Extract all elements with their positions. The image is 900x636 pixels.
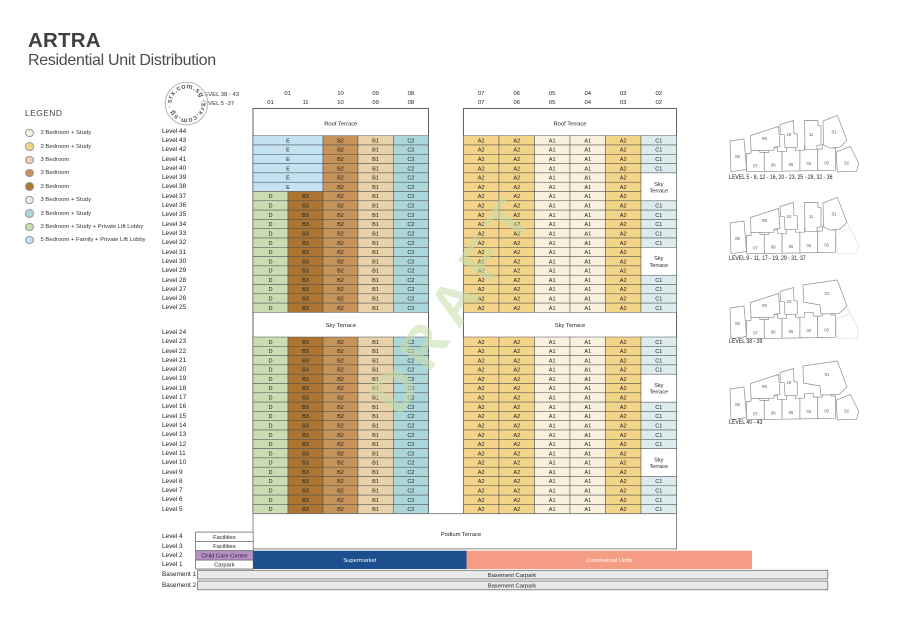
- svg-text:05: 05: [789, 244, 794, 249]
- svg-text:C2: C2: [407, 185, 414, 191]
- svg-text:A2: A2: [620, 433, 627, 439]
- svg-text:B3: B3: [302, 414, 309, 420]
- svg-text:B2: B2: [337, 250, 344, 256]
- svg-text:04: 04: [806, 243, 811, 248]
- svg-text:B2: B2: [337, 241, 344, 247]
- svg-text:A2: A2: [513, 470, 520, 476]
- svg-text:A2: A2: [620, 451, 627, 457]
- svg-text:Terrace: Terrace: [649, 263, 668, 269]
- svg-text:B2: B2: [337, 269, 344, 275]
- svg-text:Terrace: Terrace: [649, 464, 668, 470]
- svg-text:B3: B3: [302, 269, 309, 275]
- svg-text:A1: A1: [549, 278, 556, 284]
- svg-text:A1: A1: [549, 424, 556, 430]
- svg-text:A2: A2: [513, 414, 520, 420]
- svg-text:02: 02: [844, 409, 849, 414]
- svg-text:B2: B2: [337, 148, 344, 154]
- svg-text:A2: A2: [478, 222, 485, 228]
- svg-text:C1: C1: [655, 507, 662, 513]
- svg-text:C2: C2: [407, 442, 414, 448]
- svg-text:Terrace: Terrace: [649, 390, 668, 396]
- svg-text:A2: A2: [620, 269, 627, 275]
- svg-text:C2: C2: [407, 424, 414, 430]
- svg-text:A2: A2: [620, 461, 627, 467]
- svg-text:A2: A2: [620, 250, 627, 256]
- svg-text:10: 10: [787, 299, 792, 304]
- svg-text:A1: A1: [549, 241, 556, 247]
- svg-text:A2: A2: [620, 414, 627, 420]
- svg-text:D: D: [268, 368, 272, 374]
- svg-text:C2: C2: [407, 396, 414, 402]
- svg-text:A1: A1: [584, 204, 591, 210]
- svg-text:A2: A2: [620, 204, 627, 210]
- svg-text:C2: C2: [407, 461, 414, 467]
- svg-text:A2: A2: [620, 148, 627, 154]
- svg-text:A2: A2: [478, 349, 485, 355]
- svg-text:06: 06: [771, 245, 776, 250]
- svg-text:B3: B3: [302, 204, 309, 210]
- svg-text:03: 03: [824, 242, 829, 247]
- svg-text:A2: A2: [620, 358, 627, 364]
- svg-text:A2: A2: [620, 138, 627, 144]
- svg-text:05: 05: [789, 329, 794, 334]
- svg-text:B1: B1: [372, 386, 379, 392]
- svg-text:A1: A1: [584, 194, 591, 200]
- svg-text:C2: C2: [407, 157, 414, 163]
- svg-text:06: 06: [771, 330, 776, 335]
- svg-text:C2: C2: [407, 231, 414, 237]
- svg-text:B1: B1: [372, 358, 379, 364]
- svg-text:B1: B1: [372, 269, 379, 275]
- svg-text:A2: A2: [513, 489, 520, 495]
- svg-text:C1: C1: [655, 340, 662, 346]
- svg-text:A2: A2: [478, 377, 485, 383]
- svg-text:B3: B3: [302, 386, 309, 392]
- svg-text:B1: B1: [372, 241, 379, 247]
- svg-text:B2: B2: [337, 204, 344, 210]
- svg-text:B2: B2: [337, 340, 344, 346]
- svg-text:A2: A2: [513, 498, 520, 504]
- svg-text:Sky Terrace: Sky Terrace: [326, 323, 357, 329]
- svg-text:08: 08: [735, 402, 740, 407]
- svg-text:C1: C1: [655, 358, 662, 364]
- svg-text:B3: B3: [302, 287, 309, 293]
- svg-text:C2: C2: [407, 498, 414, 504]
- svg-text:A1: A1: [549, 461, 556, 467]
- svg-text:C2: C2: [407, 213, 414, 219]
- svg-text:A1: A1: [584, 250, 591, 256]
- svg-text:C2: C2: [407, 358, 414, 364]
- svg-text:Basement Carpark: Basement Carpark: [488, 584, 536, 590]
- svg-text:A2: A2: [620, 241, 627, 247]
- svg-text:A2: A2: [620, 213, 627, 219]
- svg-text:A1: A1: [584, 157, 591, 163]
- svg-text:A2: A2: [478, 405, 485, 411]
- svg-text:A1: A1: [549, 138, 556, 144]
- svg-text:B3: B3: [302, 358, 309, 364]
- svg-text:Podium Terrace: Podium Terrace: [441, 532, 482, 538]
- svg-text:C2: C2: [407, 306, 414, 312]
- svg-text:C2: C2: [407, 287, 414, 293]
- svg-text:A1: A1: [549, 269, 556, 275]
- svg-text:D: D: [268, 507, 272, 513]
- svg-text:C2: C2: [407, 349, 414, 355]
- svg-text:B3: B3: [302, 241, 309, 247]
- svg-text:B2: B2: [337, 368, 344, 374]
- svg-text:C2: C2: [407, 433, 414, 439]
- svg-text:A1: A1: [584, 241, 591, 247]
- svg-text:B1: B1: [372, 231, 379, 237]
- svg-text:C2: C2: [407, 194, 414, 200]
- svg-text:A1: A1: [549, 250, 556, 256]
- svg-text:B1: B1: [372, 222, 379, 228]
- svg-text:04: 04: [806, 409, 811, 414]
- svg-text:D: D: [268, 259, 272, 265]
- svg-text:A1: A1: [549, 176, 556, 182]
- svg-text:A1: A1: [584, 489, 591, 495]
- svg-text:A2: A2: [620, 470, 627, 476]
- svg-text:D: D: [268, 287, 272, 293]
- svg-text:B1: B1: [372, 424, 379, 430]
- svg-text:A2: A2: [620, 297, 627, 303]
- svg-text:A1: A1: [549, 166, 556, 172]
- svg-text:A2: A2: [620, 176, 627, 182]
- svg-text:B1: B1: [372, 250, 379, 256]
- svg-text:B2: B2: [337, 185, 344, 191]
- svg-text:B1: B1: [372, 396, 379, 402]
- svg-text:A2: A2: [513, 222, 520, 228]
- svg-text:B3: B3: [302, 489, 309, 495]
- svg-text:A1: A1: [584, 442, 591, 448]
- svg-text:B2: B2: [337, 405, 344, 411]
- svg-text:A2: A2: [513, 386, 520, 392]
- svg-text:Carpark: Carpark: [214, 563, 235, 569]
- svg-text:A1: A1: [549, 507, 556, 513]
- svg-text:A2: A2: [513, 396, 520, 402]
- svg-text:Facilities: Facilities: [213, 544, 236, 550]
- svg-text:C2: C2: [407, 176, 414, 182]
- svg-text:A2: A2: [620, 349, 627, 355]
- svg-text:A2: A2: [620, 396, 627, 402]
- svg-text:A1: A1: [584, 166, 591, 172]
- svg-text:C2: C2: [407, 377, 414, 383]
- svg-text:A2: A2: [478, 278, 485, 284]
- svg-text:C1: C1: [655, 489, 662, 495]
- svg-text:C1: C1: [655, 204, 662, 210]
- svg-text:B3: B3: [302, 340, 309, 346]
- svg-text:A2: A2: [513, 368, 520, 374]
- svg-text:D: D: [268, 306, 272, 312]
- svg-text:A2: A2: [513, 442, 520, 448]
- svg-text:A1: A1: [584, 424, 591, 430]
- svg-text:C2: C2: [407, 148, 414, 154]
- svg-text:A2: A2: [513, 433, 520, 439]
- svg-text:01: 01: [825, 291, 830, 296]
- svg-text:C2: C2: [407, 470, 414, 476]
- svg-text:A1: A1: [584, 222, 591, 228]
- svg-text:A1: A1: [584, 414, 591, 420]
- svg-text:A1: A1: [584, 138, 591, 144]
- svg-text:B1: B1: [372, 498, 379, 504]
- svg-text:A2: A2: [513, 148, 520, 154]
- svg-text:05: 05: [789, 162, 794, 167]
- svg-text:B2: B2: [337, 451, 344, 457]
- svg-text:B2: B2: [337, 259, 344, 265]
- svg-text:A1: A1: [549, 259, 556, 265]
- svg-text:B3: B3: [302, 368, 309, 374]
- svg-text:E: E: [286, 185, 290, 191]
- svg-text:B2: B2: [337, 231, 344, 237]
- svg-text:B1: B1: [372, 470, 379, 476]
- svg-text:C2: C2: [407, 479, 414, 485]
- svg-text:B3: B3: [302, 405, 309, 411]
- svg-text:07: 07: [753, 163, 758, 168]
- svg-text:B2: B2: [337, 176, 344, 182]
- svg-text:A2: A2: [478, 287, 485, 293]
- svg-text:A1: A1: [584, 306, 591, 312]
- svg-text:A1: A1: [549, 451, 556, 457]
- svg-text:Sky: Sky: [654, 383, 664, 389]
- svg-text:B3: B3: [302, 349, 309, 355]
- svg-text:01: 01: [832, 130, 837, 135]
- svg-text:A2: A2: [620, 287, 627, 293]
- svg-text:C2: C2: [407, 250, 414, 256]
- svg-text:A1: A1: [584, 368, 591, 374]
- svg-text:04: 04: [806, 161, 811, 166]
- svg-text:A1: A1: [584, 176, 591, 182]
- svg-text:B2: B2: [337, 222, 344, 228]
- svg-text:E: E: [286, 138, 290, 144]
- svg-text:C2: C2: [407, 340, 414, 346]
- svg-text:A1: A1: [549, 433, 556, 439]
- svg-text:A1: A1: [549, 204, 556, 210]
- svg-text:A1: A1: [549, 405, 556, 411]
- svg-text:B1: B1: [372, 213, 379, 219]
- svg-text:A2: A2: [513, 377, 520, 383]
- svg-text:B2: B2: [337, 349, 344, 355]
- svg-text:D: D: [268, 433, 272, 439]
- svg-text:D: D: [268, 358, 272, 364]
- svg-text:D: D: [268, 349, 272, 355]
- svg-text:D: D: [268, 204, 272, 210]
- svg-text:B1: B1: [372, 405, 379, 411]
- svg-text:A2: A2: [513, 306, 520, 312]
- svg-text:07: 07: [753, 245, 758, 250]
- svg-text:A2: A2: [478, 185, 485, 191]
- svg-text:A1: A1: [584, 269, 591, 275]
- svg-text:D: D: [268, 241, 272, 247]
- svg-text:A2: A2: [620, 166, 627, 172]
- svg-text:A2: A2: [478, 489, 485, 495]
- svg-text:A1: A1: [549, 479, 556, 485]
- svg-text:B1: B1: [372, 489, 379, 495]
- svg-text:A2: A2: [478, 138, 485, 144]
- svg-text:C2: C2: [407, 278, 414, 284]
- svg-text:A1: A1: [549, 498, 556, 504]
- svg-text:A2: A2: [513, 405, 520, 411]
- svg-text:A2: A2: [620, 340, 627, 346]
- svg-text:D: D: [268, 297, 272, 303]
- svg-text:C2: C2: [407, 451, 414, 457]
- svg-text:A2: A2: [478, 507, 485, 513]
- svg-text:B2: B2: [337, 138, 344, 144]
- svg-text:A2: A2: [478, 340, 485, 346]
- svg-text:B2: B2: [337, 507, 344, 513]
- svg-text:A1: A1: [549, 358, 556, 364]
- svg-text:09: 09: [762, 303, 767, 308]
- svg-text:D: D: [268, 424, 272, 430]
- svg-text:B3: B3: [302, 306, 309, 312]
- svg-text:04: 04: [806, 328, 811, 333]
- svg-text:C2: C2: [407, 507, 414, 513]
- svg-text:A1: A1: [549, 368, 556, 374]
- svg-text:A1: A1: [584, 479, 591, 485]
- svg-text:A2: A2: [620, 368, 627, 374]
- svg-text:Sky Terrace: Sky Terrace: [555, 323, 586, 329]
- svg-text:B3: B3: [302, 213, 309, 219]
- svg-text:06: 06: [771, 411, 776, 416]
- svg-text:C1: C1: [655, 278, 662, 284]
- svg-text:A2: A2: [513, 250, 520, 256]
- svg-text:A2: A2: [620, 424, 627, 430]
- svg-text:Supermarket: Supermarket: [343, 558, 377, 564]
- svg-text:A2: A2: [513, 358, 520, 364]
- svg-text:A1: A1: [549, 297, 556, 303]
- svg-text:A2: A2: [620, 157, 627, 163]
- svg-text:A1: A1: [584, 405, 591, 411]
- svg-text:B1: B1: [372, 433, 379, 439]
- svg-text:B3: B3: [302, 498, 309, 504]
- svg-text:B2: B2: [337, 194, 344, 200]
- svg-text:C1: C1: [655, 424, 662, 430]
- svg-text:B3: B3: [302, 461, 309, 467]
- svg-text:01: 01: [825, 372, 830, 377]
- svg-text:A2: A2: [620, 259, 627, 265]
- svg-text:A2: A2: [513, 138, 520, 144]
- svg-text:A1: A1: [584, 470, 591, 476]
- svg-text:E: E: [286, 157, 290, 163]
- svg-text:C2: C2: [407, 368, 414, 374]
- svg-text:Terrace: Terrace: [649, 188, 668, 194]
- svg-text:D: D: [268, 479, 272, 485]
- svg-text:A2: A2: [620, 377, 627, 383]
- svg-text:10: 10: [787, 380, 792, 385]
- svg-text:B3: B3: [302, 470, 309, 476]
- svg-text:B3: B3: [302, 433, 309, 439]
- svg-text:B1: B1: [372, 259, 379, 265]
- svg-text:B1: B1: [372, 451, 379, 457]
- svg-text:A2: A2: [513, 259, 520, 265]
- svg-text:B1: B1: [372, 461, 379, 467]
- svg-text:B1: B1: [372, 157, 379, 163]
- svg-text:B1: B1: [372, 340, 379, 346]
- svg-text:Sky: Sky: [654, 182, 664, 188]
- svg-text:A2: A2: [478, 470, 485, 476]
- svg-text:Sky: Sky: [654, 458, 664, 464]
- svg-text:C1: C1: [655, 241, 662, 247]
- svg-text:D: D: [268, 498, 272, 504]
- svg-text:A1: A1: [549, 194, 556, 200]
- svg-text:05: 05: [789, 410, 794, 415]
- svg-text:A2: A2: [513, 479, 520, 485]
- svg-text:B1: B1: [372, 414, 379, 420]
- svg-text:07: 07: [753, 330, 758, 335]
- svg-text:C1: C1: [655, 148, 662, 154]
- svg-text:A2: A2: [478, 386, 485, 392]
- svg-text:Sky: Sky: [654, 256, 664, 262]
- svg-text:A2: A2: [478, 176, 485, 182]
- svg-text:B1: B1: [372, 507, 379, 513]
- svg-text:B1: B1: [372, 185, 379, 191]
- svg-text:A1: A1: [584, 278, 591, 284]
- svg-text:A1: A1: [584, 451, 591, 457]
- svg-text:A2: A2: [513, 349, 520, 355]
- svg-text:C2: C2: [407, 405, 414, 411]
- svg-text:A2: A2: [478, 241, 485, 247]
- svg-text:08: 08: [735, 236, 740, 241]
- svg-text:B1: B1: [372, 377, 379, 383]
- svg-text:02: 02: [844, 161, 849, 166]
- svg-text:B1: B1: [372, 278, 379, 284]
- svg-text:A1: A1: [584, 507, 591, 513]
- svg-text:D: D: [268, 470, 272, 476]
- svg-text:C1: C1: [655, 287, 662, 293]
- svg-text:B2: B2: [337, 377, 344, 383]
- svg-text:A2: A2: [478, 231, 485, 237]
- svg-text:A1: A1: [549, 349, 556, 355]
- svg-text:A1: A1: [549, 470, 556, 476]
- svg-text:D: D: [268, 278, 272, 284]
- svg-text:A2: A2: [478, 148, 485, 154]
- svg-text:B2: B2: [337, 396, 344, 402]
- svg-text:B2: B2: [337, 386, 344, 392]
- svg-text:B3: B3: [302, 507, 309, 513]
- svg-text:A1: A1: [584, 396, 591, 402]
- svg-text:09: 09: [762, 384, 767, 389]
- svg-text:A2: A2: [478, 204, 485, 210]
- svg-text:01: 01: [832, 212, 837, 217]
- svg-text:Child Care Centre: Child Care Centre: [201, 554, 247, 560]
- svg-text:Roof Terrace: Roof Terrace: [324, 122, 357, 128]
- svg-text:B2: B2: [337, 166, 344, 172]
- svg-text:A2: A2: [620, 498, 627, 504]
- svg-text:D: D: [268, 269, 272, 275]
- svg-text:09: 09: [762, 136, 767, 141]
- svg-text:D: D: [268, 386, 272, 392]
- svg-text:B2: B2: [337, 358, 344, 364]
- svg-text:D: D: [268, 442, 272, 448]
- svg-text:A2: A2: [620, 231, 627, 237]
- svg-text:A2: A2: [620, 386, 627, 392]
- svg-text:A1: A1: [549, 213, 556, 219]
- svg-text:D: D: [268, 489, 272, 495]
- svg-text:B2: B2: [337, 461, 344, 467]
- svg-text:C1: C1: [655, 166, 662, 172]
- svg-text:A2: A2: [478, 498, 485, 504]
- svg-text:B2: B2: [337, 297, 344, 303]
- svg-text:A2: A2: [513, 204, 520, 210]
- svg-text:B1: B1: [372, 204, 379, 210]
- svg-text:A2: A2: [478, 424, 485, 430]
- svg-text:A2: A2: [513, 451, 520, 457]
- svg-text:A2: A2: [478, 433, 485, 439]
- svg-text:C2: C2: [407, 489, 414, 495]
- svg-text:A1: A1: [584, 377, 591, 383]
- svg-text:B1: B1: [372, 368, 379, 374]
- svg-text:D: D: [268, 396, 272, 402]
- svg-text:A1: A1: [584, 148, 591, 154]
- svg-text:C2: C2: [407, 259, 414, 265]
